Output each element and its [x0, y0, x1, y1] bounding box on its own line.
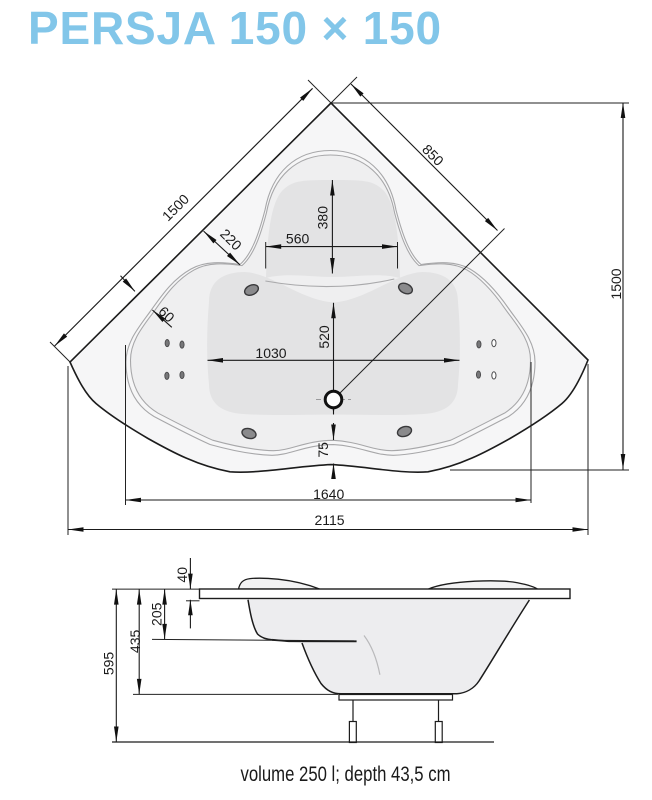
svg-text:595: 595 [101, 652, 117, 676]
svg-text:435: 435 [127, 630, 143, 654]
svg-text:380: 380 [314, 206, 330, 230]
svg-text:560: 560 [286, 231, 310, 247]
svg-text:1030: 1030 [255, 345, 286, 361]
svg-text:520: 520 [316, 325, 332, 349]
svg-text:205: 205 [149, 602, 165, 626]
svg-text:1500: 1500 [159, 191, 192, 224]
svg-text:40: 40 [174, 567, 190, 583]
svg-text:2115: 2115 [314, 512, 344, 528]
svg-text:1500: 1500 [608, 268, 624, 299]
svg-text:850: 850 [419, 141, 447, 169]
svg-text:1640: 1640 [313, 486, 344, 502]
svg-text:75: 75 [315, 442, 331, 458]
